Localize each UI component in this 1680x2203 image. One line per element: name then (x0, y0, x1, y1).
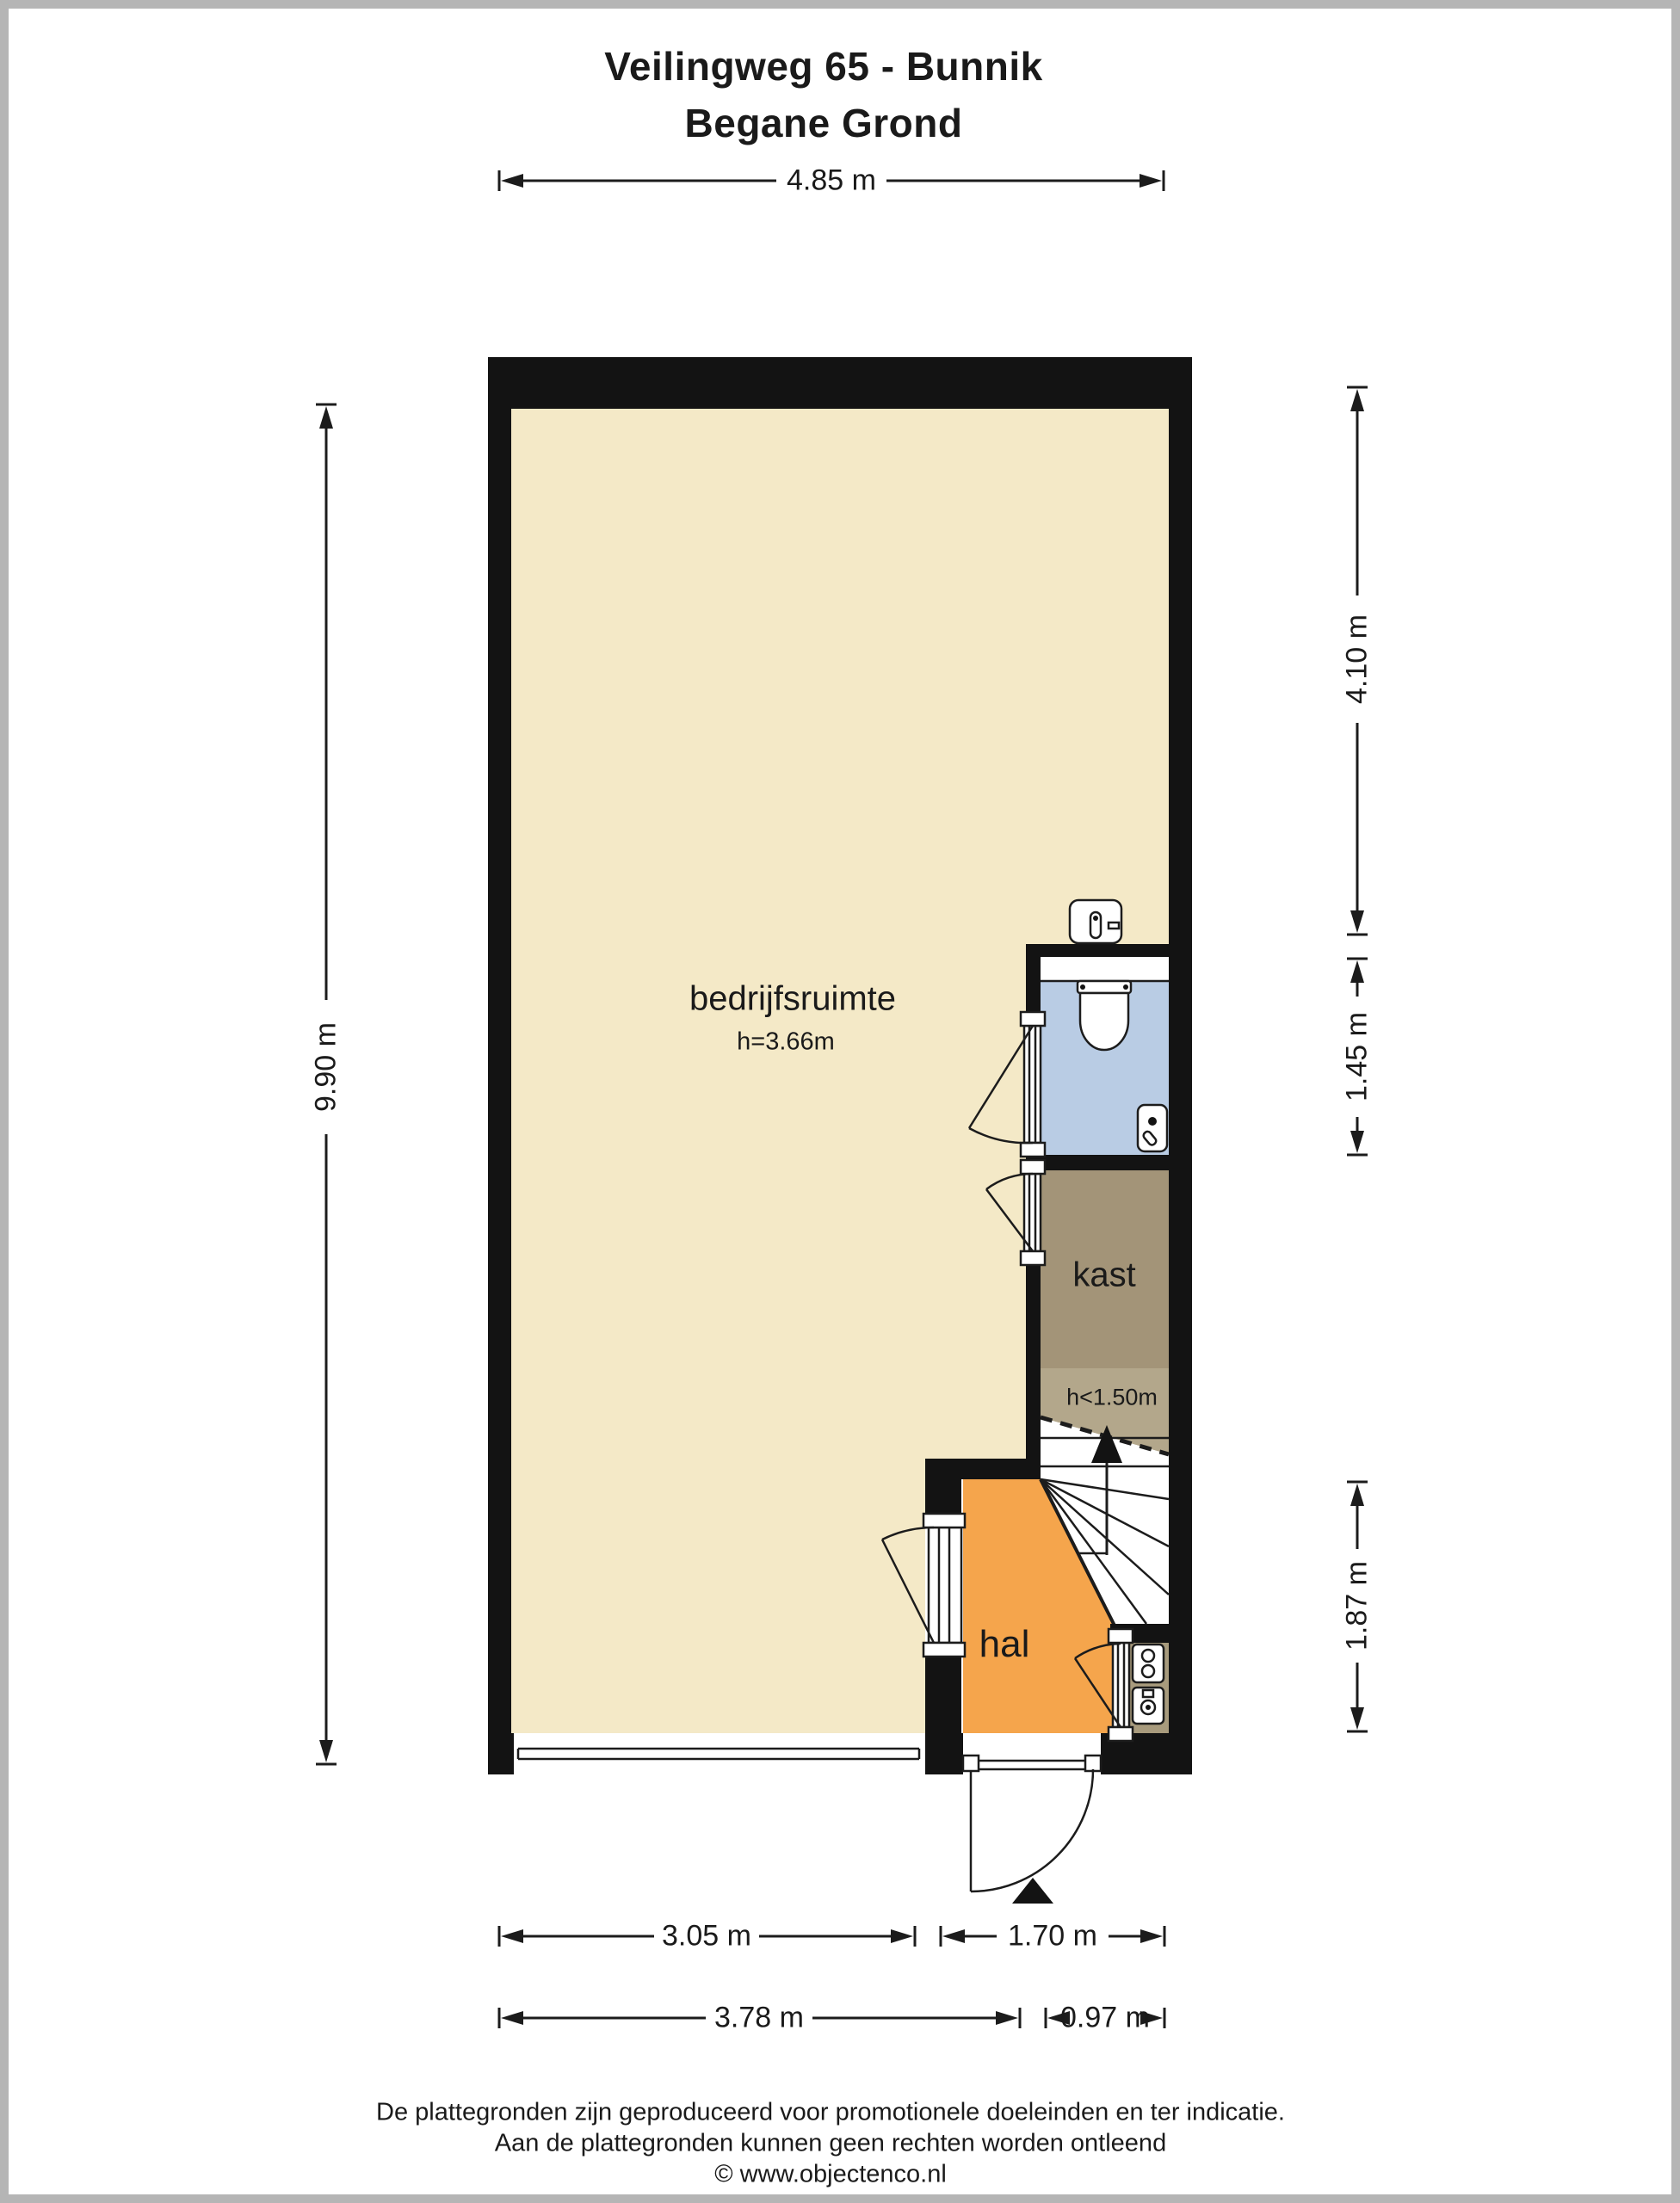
footer-disclaimer-line1: De plattegronden zijn geproduceerd voor … (376, 2099, 1285, 2127)
dimension-label-top-width: 4.85 m (787, 164, 876, 198)
wall-toilet-top (1026, 944, 1169, 957)
toilet-fixture-icon (1078, 981, 1131, 1050)
wall-toilet-bottom (1026, 1155, 1169, 1170)
wall-bottom-center-post (925, 1733, 963, 1774)
boiler-icon (1070, 900, 1121, 943)
dimension-label-right-lower: 1.87 m (1341, 1561, 1374, 1651)
wall-hal-top (925, 1459, 1041, 1479)
room-label-bedrijfsruimte: bedrijfsruimte (689, 980, 896, 1019)
footer-disclaimer-line2: Aan de plattegronden kunnen geen rechten… (495, 2130, 1166, 2158)
room-label-hal: hal (979, 1623, 1030, 1666)
dimension-label-right-middle: 1.45 m (1341, 1012, 1374, 1101)
floorplan-page: Veilingweg 65 - Bunnik Begane Grond 4.85… (0, 0, 1680, 2203)
page-subtitle: Begane Grond (685, 100, 963, 146)
room-height-bedrijfsruimte: h=3.66m (737, 1028, 835, 1057)
dimension-label-bottom-row1-left: 3.05 m (662, 1920, 751, 1953)
front-door (963, 1733, 1101, 1891)
dimension-label-bottom-row1-right: 1.70 m (1008, 1920, 1097, 1953)
floorplan-drawing (0, 0, 1680, 2203)
room-height-kast: h<1.50m (1066, 1385, 1158, 1411)
room-label-kast: kast (1072, 1256, 1135, 1295)
page-title: Veilingweg 65 - Bunnik (604, 43, 1042, 89)
dimension-label-bottom-row2-right: 0.97 m (1060, 2002, 1150, 2035)
toilet-counter-band (1041, 957, 1169, 981)
dimension-label-bottom-row2-left: 3.78 m (714, 2002, 804, 2035)
hand-basin-icon (1138, 1105, 1167, 1151)
wall-right (1169, 357, 1192, 1774)
wall-top (488, 357, 1192, 409)
dimension-label-left-height: 9.90 m (310, 1022, 343, 1112)
footer-copyright: © www.objectenco.nl (714, 2161, 947, 2189)
wall-left (488, 357, 511, 1774)
front-window (514, 1733, 925, 1774)
dimension-label-right-upper: 4.10 m (1341, 614, 1374, 704)
